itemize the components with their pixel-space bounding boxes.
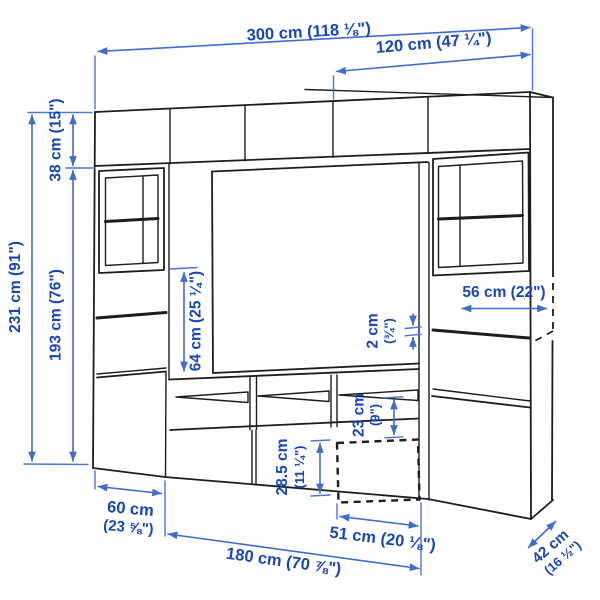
gap-label-line1: 2 cm: [365, 313, 382, 348]
left-unit-width-label-line2: (23 ⅝"): [103, 517, 155, 538]
right-column: [432, 153, 530, 408]
right-glass-door: [433, 153, 529, 276]
top-cabinet-row: [95, 97, 530, 166]
lower-section-height-label: 193 cm (76"): [48, 269, 65, 361]
top-cabinet-height-label: 38 cm (15"): [48, 98, 65, 181]
dimension-drawer-front-height: 28.5 cm (11 ¼"): [274, 439, 330, 496]
dimension-compartment-height: 23 cm (9"): [351, 393, 404, 438]
dimension-gap: 2 cm (¾"): [365, 313, 422, 349]
product-dimension-image: 300 cm (118 ⅛") 120 cm (47 ¼") 38 cm (15…: [0, 0, 600, 600]
bench-shelf-middle: [258, 391, 329, 402]
dimension-diagram: 300 cm (118 ⅛") 120 cm (47 ¼") 38 cm (15…: [0, 0, 600, 600]
gap-label-line2: (¾"): [382, 318, 397, 344]
left-column: [97, 164, 169, 477]
furniture-drawing: [93, 90, 553, 520]
compartment-height-label-line1: 23 cm: [351, 393, 368, 437]
total-height-label: 231 cm (91"): [7, 241, 24, 333]
drawer-front-height-label-line1: 28.5 cm: [274, 439, 291, 496]
dimension-upper-right-width: 120 cm (47 ¼"): [334, 29, 531, 99]
side-opening-height-label: 64 cm (25 ¼"): [188, 271, 205, 371]
dimension-side-opening-height: 64 cm (25 ¼"): [170, 268, 205, 372]
total-width-label: 300 cm (118 ⅛"): [246, 19, 371, 44]
depth-dashed-edge: [533, 270, 553, 342]
drawer-front-height-label-line2: (11 ¼"): [292, 445, 307, 488]
cabinet-outline: [93, 90, 553, 520]
compartment-height-label-line2: (9"): [368, 404, 383, 426]
dimension-unit-depth: 42 cm (16 ½"): [529, 522, 584, 578]
dimension-left-unit-width: 60 cm (23 ⅝"): [95, 471, 165, 538]
right-shelf: [433, 330, 529, 338]
left-bottom-door: [166, 372, 167, 477]
left-shelf: [97, 313, 166, 319]
dimension-shelf-width: 56 cm (22"): [462, 284, 547, 309]
bench-shelf-left: [176, 392, 248, 403]
dimension-lower-section-height: 193 cm (76"): [48, 171, 74, 462]
upper-right-width-label: 120 cm (47 ¼"): [375, 29, 492, 57]
dimension-total-height: 231 cm (91"): [7, 115, 32, 461]
shelf-width-label: 56 cm (22"): [462, 284, 545, 301]
dimension-top-cabinet-height: 38 cm (15"): [48, 98, 74, 181]
